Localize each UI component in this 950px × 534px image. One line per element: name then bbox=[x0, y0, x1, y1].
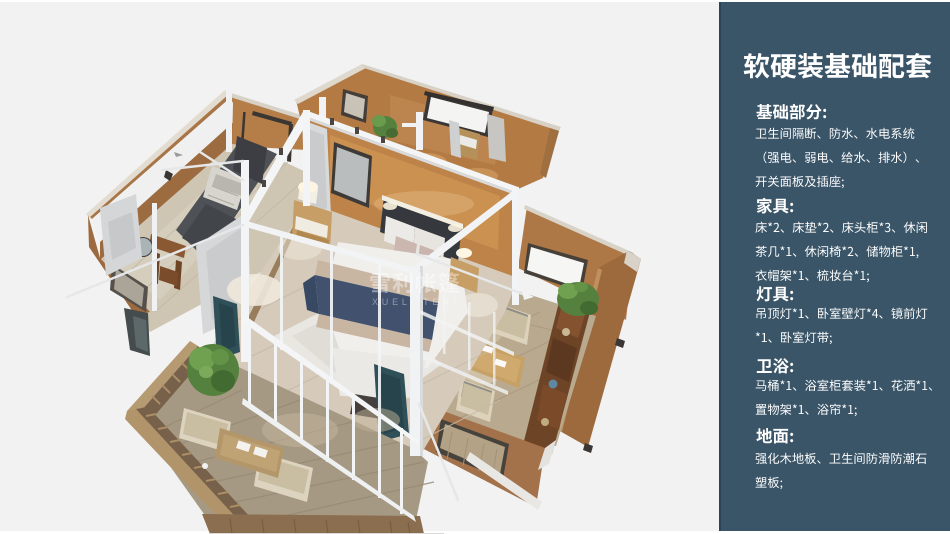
svg-text:XUELI TENT: XUELI TENT bbox=[372, 297, 462, 307]
